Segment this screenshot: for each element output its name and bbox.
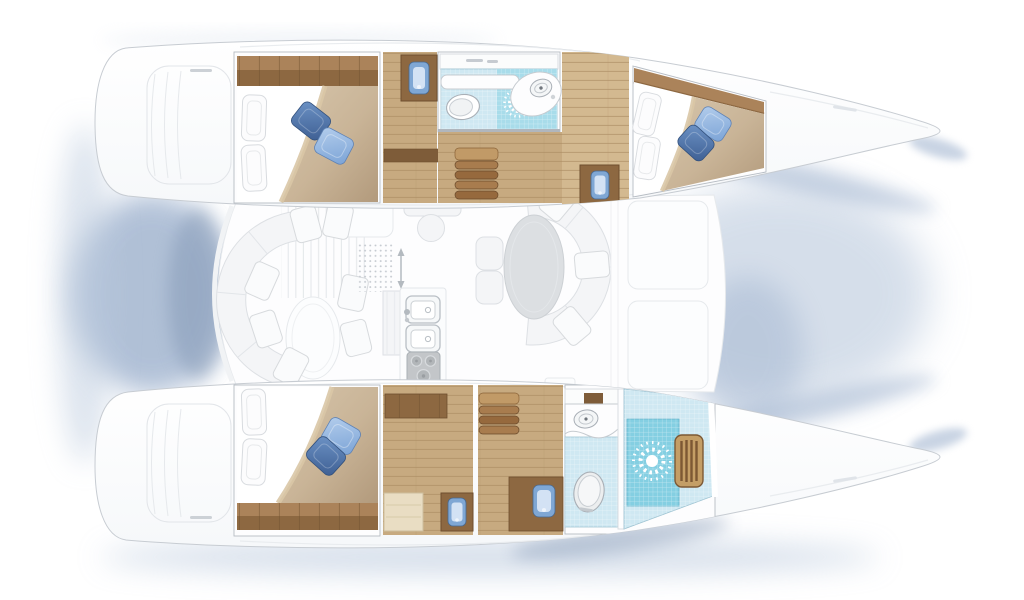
coachroof-panel xyxy=(628,201,708,289)
starboard-dressing-area xyxy=(383,385,473,535)
sink-basin-inner xyxy=(411,301,435,319)
faucet-icon xyxy=(404,309,410,315)
vanity-washbasin xyxy=(591,171,609,199)
galley-cabinet-lines xyxy=(383,291,400,355)
port-head xyxy=(438,52,568,132)
washbasin-counter xyxy=(441,75,519,89)
port-companionway xyxy=(438,132,562,203)
stool xyxy=(418,215,445,242)
companionway-steps xyxy=(455,148,498,199)
faucet-icon xyxy=(417,85,421,89)
sink-basin-inner xyxy=(411,330,435,348)
footboard-grain xyxy=(237,503,378,530)
bench-cushion xyxy=(384,493,423,531)
floorplan-canvas xyxy=(0,0,1024,600)
faucet-icon xyxy=(551,95,555,99)
vanity-washbasin xyxy=(409,62,429,94)
starboard-companionway xyxy=(478,385,563,535)
white-pillow xyxy=(241,438,267,485)
headboard-grain xyxy=(237,56,378,86)
shelf-handle xyxy=(487,60,498,63)
white-pillow xyxy=(241,95,267,142)
faucet-icon xyxy=(598,191,602,195)
companionway-steps xyxy=(479,393,519,434)
sofa-cushion xyxy=(574,251,610,280)
vanity-washbasin xyxy=(533,485,555,517)
bridgedeck xyxy=(215,177,726,392)
galley-floor-mat xyxy=(356,242,394,292)
head-partition xyxy=(618,389,624,529)
salon-bench xyxy=(476,237,503,270)
head-shelf xyxy=(440,54,558,69)
starboard-aft-cabin xyxy=(234,385,380,536)
dining-table xyxy=(504,215,564,319)
catamaran-floorplan-page xyxy=(0,0,1024,600)
faucet-icon xyxy=(405,318,409,322)
faucet-icon xyxy=(542,508,546,512)
port-forward-hallway xyxy=(562,52,629,205)
vanity-washbasin xyxy=(448,498,466,526)
burner-center xyxy=(422,374,425,377)
deck-fitting xyxy=(190,69,212,72)
port-aft-cabin xyxy=(234,52,380,203)
head-partition xyxy=(438,129,560,132)
burner-center xyxy=(429,360,432,363)
coachroof-panel xyxy=(628,301,708,389)
bench-seat xyxy=(384,493,423,531)
deck-fitting xyxy=(190,516,212,519)
white-pillow xyxy=(241,389,267,436)
shower-forward-wall xyxy=(711,396,715,497)
faucet-icon xyxy=(455,518,459,522)
salon-bench xyxy=(476,271,503,304)
burner-center xyxy=(415,360,418,363)
white-pillow xyxy=(241,144,267,191)
cabinet-grain xyxy=(385,394,447,418)
shelf-handle xyxy=(466,59,483,62)
teak-grating xyxy=(675,435,703,487)
